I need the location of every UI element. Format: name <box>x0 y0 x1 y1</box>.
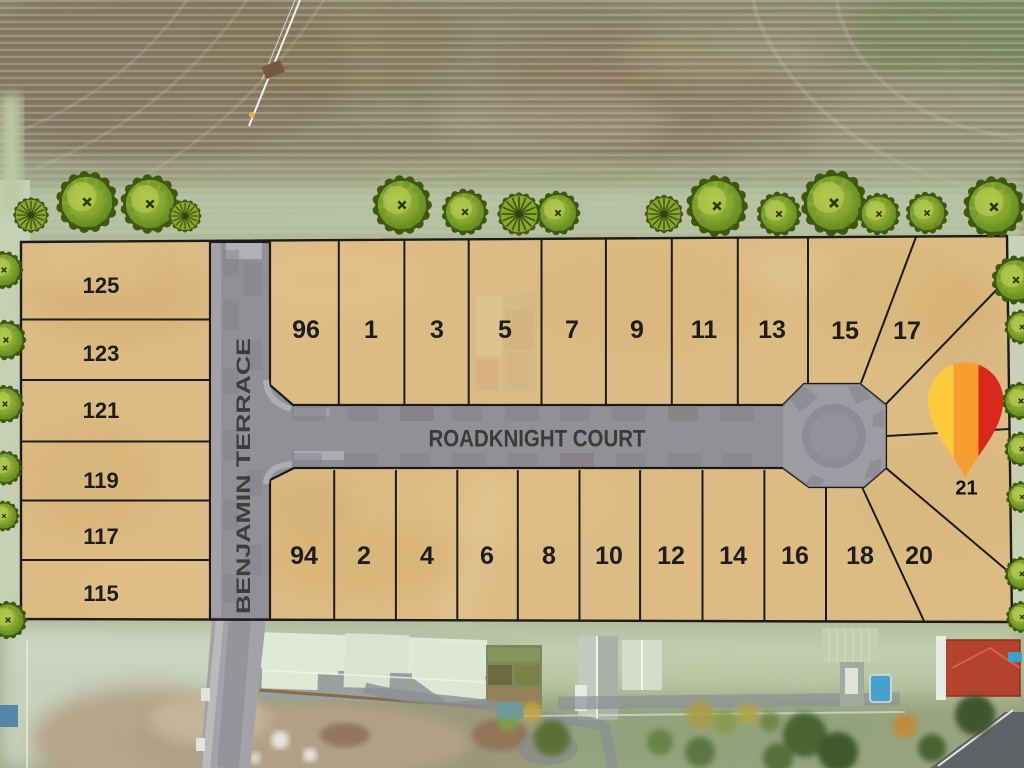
svg-text:13: 13 <box>758 316 786 344</box>
svg-text:6: 6 <box>480 542 494 570</box>
svg-text:8: 8 <box>542 542 556 570</box>
svg-text:12: 12 <box>657 542 685 570</box>
svg-text:21: 21 <box>955 478 977 500</box>
svg-text:15: 15 <box>831 317 859 345</box>
svg-text:96: 96 <box>292 316 320 344</box>
svg-text:20: 20 <box>905 542 933 570</box>
svg-text:9: 9 <box>630 316 644 344</box>
svg-text:11: 11 <box>691 316 718 344</box>
svg-text:115: 115 <box>83 581 119 606</box>
svg-text:BENJAMIN TERRACE: BENJAMIN TERRACE <box>233 338 255 614</box>
svg-text:17: 17 <box>893 317 921 345</box>
svg-text:7: 7 <box>565 316 579 344</box>
svg-text:16: 16 <box>781 542 809 570</box>
svg-text:4: 4 <box>420 542 434 570</box>
svg-text:1: 1 <box>364 316 378 344</box>
svg-text:10: 10 <box>595 542 623 570</box>
svg-text:121: 121 <box>83 398 120 423</box>
svg-text:125: 125 <box>83 273 120 298</box>
svg-text:119: 119 <box>83 468 119 493</box>
svg-text:123: 123 <box>83 341 120 366</box>
svg-text:3: 3 <box>430 316 444 344</box>
svg-text:2: 2 <box>357 542 371 570</box>
svg-text:ROADKNIGHT COURT: ROADKNIGHT COURT <box>429 426 646 453</box>
svg-text:94: 94 <box>290 542 318 570</box>
svg-text:117: 117 <box>83 524 119 549</box>
svg-text:14: 14 <box>719 542 747 570</box>
svg-text:18: 18 <box>846 542 874 570</box>
svg-text:5: 5 <box>498 316 512 344</box>
